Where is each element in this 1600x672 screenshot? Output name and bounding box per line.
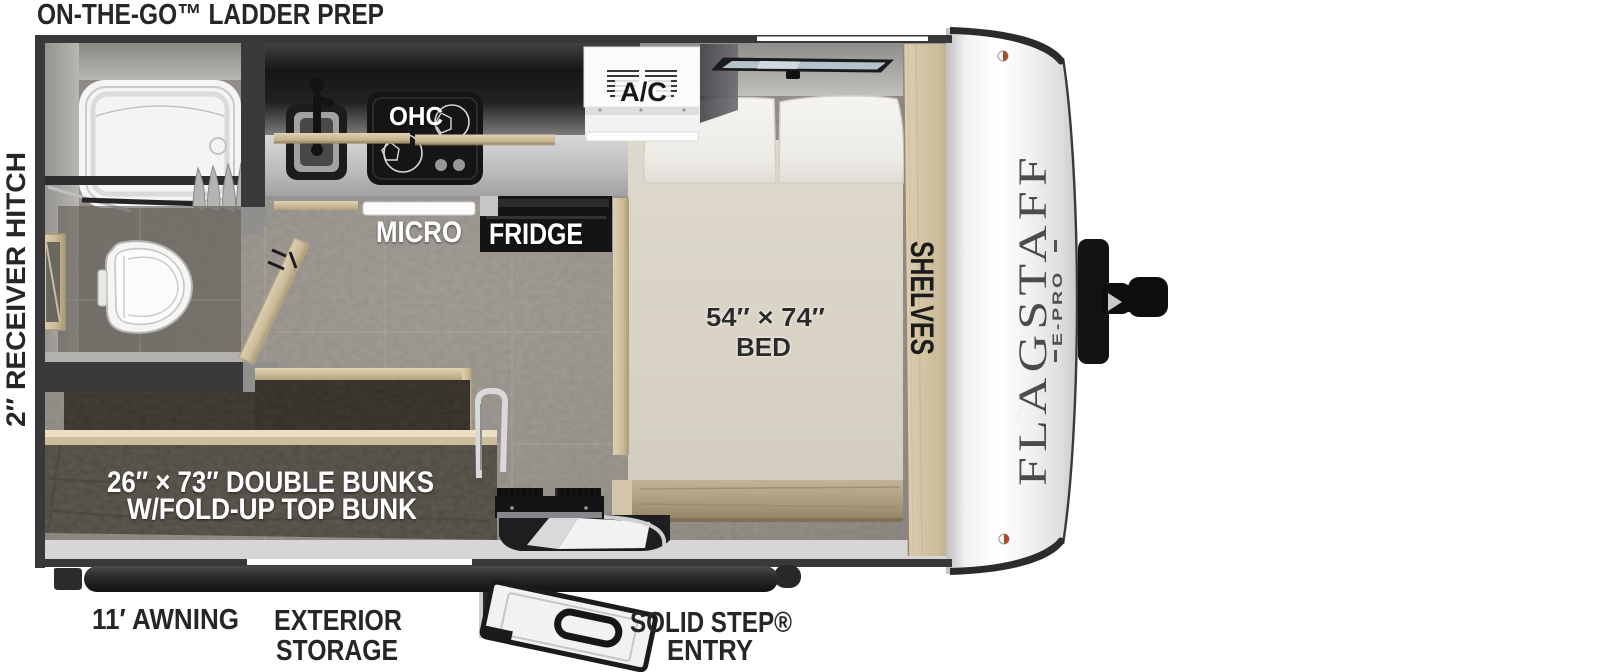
svg-text:A/C: A/C [620,77,667,107]
svg-text:OHC: OHC [389,101,443,131]
svg-text:11′ AWNING: 11′ AWNING [92,604,239,636]
svg-text:SHELVES: SHELVES [904,241,940,355]
svg-text:MICRO: MICRO [376,216,462,249]
svg-text:54″ × 74″: 54″ × 74″ [706,302,825,332]
svg-text:ON-THE-GO™ LADDER PREP: ON-THE-GO™ LADDER PREP [37,0,384,31]
svg-text:E-PRO: E-PRO [1049,270,1065,346]
svg-text:2″ RECEIVER HITCH: 2″ RECEIVER HITCH [1,152,31,427]
svg-text:W/FOLD-UP TOP BUNK: W/FOLD-UP TOP BUNK [127,493,417,526]
svg-text:FRIDGE: FRIDGE [489,218,583,251]
svg-text:BED: BED [736,332,791,362]
svg-text:EXTERIOR: EXTERIOR [274,605,402,637]
svg-text:STORAGE: STORAGE [276,635,398,667]
svg-text:ENTRY: ENTRY [667,635,753,667]
